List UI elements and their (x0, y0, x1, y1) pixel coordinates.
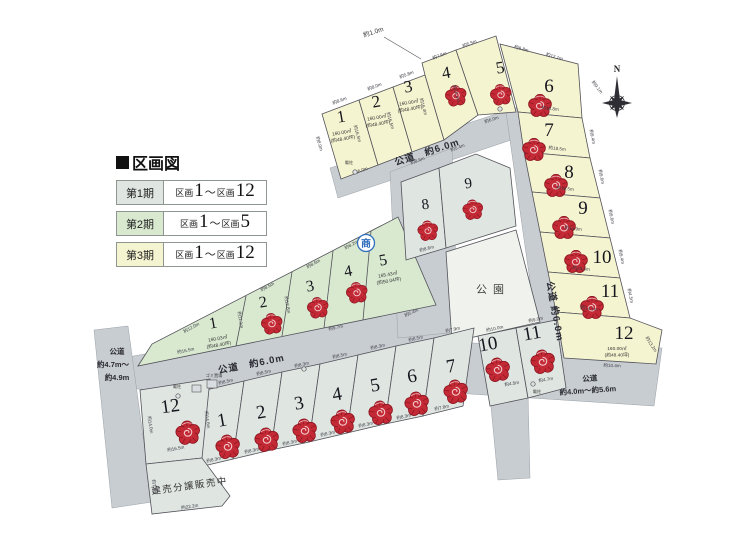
compass-cardinal-star (602, 76, 632, 118)
lot-number-label: 10 (593, 247, 612, 268)
lot-number-label: 6 (544, 76, 554, 97)
utility-pole-label: 電柱 (533, 388, 542, 395)
compass-rose-icon: N (602, 64, 632, 118)
park-label: 公園 (476, 283, 510, 296)
garbage-station-label: ゴミ置場 (206, 372, 224, 379)
dimension-label: 約8.6m (331, 95, 347, 107)
road-width-left-2: 約4.9m (105, 372, 130, 382)
lot-number-label: 10 (477, 333, 499, 357)
legend-phase2-label: 第2期 (116, 211, 164, 236)
range-to: 5 (241, 212, 251, 231)
dimension-label: 約9.1m (590, 79, 605, 95)
range-from: 1 (199, 212, 209, 231)
top-gap-label: 約1.0m (362, 24, 385, 39)
legend-phase2-range: 区画 1 ～ 区画 5 (164, 211, 267, 236)
legend-phase1-range: 区画 1 ～ 区画 12 (164, 180, 267, 205)
garbage-station-icon (192, 385, 201, 392)
legend-row-phase1: 第1期 区画 1 ～ 区画 12 (116, 180, 267, 205)
lot-number-label: 9 (578, 198, 588, 219)
dimension-label: 約8.0m (366, 81, 382, 93)
utility-pole-icon (498, 107, 502, 111)
lot-number-label: 11 (601, 281, 619, 302)
dimension-label: 約9.6m (607, 209, 617, 225)
dimension-label: 約9.4m (617, 249, 627, 265)
lot-area-label: 160.00㎡ (607, 345, 627, 352)
range-from: 1 (194, 243, 204, 262)
lot-area-label: (約48.40坪) (605, 352, 630, 359)
legend-phase3-label: 第3期 (116, 242, 164, 267)
legend-title-square-icon (116, 156, 129, 169)
range-prefix: 区画 (180, 217, 198, 230)
range-from: 1 (194, 181, 204, 200)
range-tilde: ～ (205, 184, 216, 200)
legend-row-phase2: 第2期 区画 1 ～ 区画 5 (116, 211, 267, 236)
legend-title: 区画図 (116, 150, 267, 174)
utility-pole-label: 電柱 (173, 383, 182, 390)
utility-pole-icon (176, 394, 180, 398)
lot-plan-map: 1160.00㎡(約48.40坪)2160.00㎡(約48.40坪)3160.0… (0, 0, 750, 535)
sho-badge-text: 商 (361, 237, 371, 250)
utility-pole-icon (302, 367, 306, 371)
road-label-left: 公道 (110, 346, 125, 356)
legend-phase3-range: 区画 1 ～ 区画 12 (164, 242, 267, 267)
legend: 区画図 第1期 区画 1 ～ 区画 12 第2期 区画 1 ～ 区画 5 第3期… (116, 150, 267, 267)
utility-pole-icon (353, 170, 357, 174)
compass-north-label: N (614, 64, 621, 74)
range-prefix: 区画 (217, 248, 235, 261)
sho-badge: 商 (358, 235, 375, 252)
top-gap-leader-line (384, 37, 421, 59)
legend-title-text: 区画図 (132, 150, 180, 174)
dimension-label: 約9.4m (588, 129, 598, 145)
legend-phase1-label: 第1期 (116, 180, 164, 205)
lot-number-label: 11 (521, 322, 543, 346)
range-prefix: 区画 (175, 248, 193, 261)
utility-pole-icon (531, 382, 535, 386)
dimension-label: 約4.5m (626, 288, 636, 304)
garbage-station-icon (207, 380, 217, 388)
utility-pole-label: 電柱 (345, 159, 354, 166)
dimension-label: 約8.0m (314, 136, 325, 152)
range-prefix: 区画 (217, 186, 235, 199)
road-stub (490, 394, 530, 480)
road-label-bottom-right: 公道 (582, 372, 598, 383)
range-prefix: 区画 (175, 186, 193, 199)
range-to: 12 (236, 243, 255, 262)
range-to: 12 (236, 181, 255, 200)
lot-number-label: 12 (615, 323, 634, 344)
range-tilde: ～ (205, 246, 216, 262)
lot-number-label: 7 (544, 120, 554, 141)
range-prefix: 区画 (222, 217, 240, 230)
range-tilde: ～ (210, 215, 221, 231)
dimension-label: 約9.6m (597, 169, 607, 185)
road-width-left-1: 約4.7m～ (97, 359, 130, 369)
legend-row-phase3: 第3期 区画 1 ～ 区画 12 (116, 242, 267, 267)
